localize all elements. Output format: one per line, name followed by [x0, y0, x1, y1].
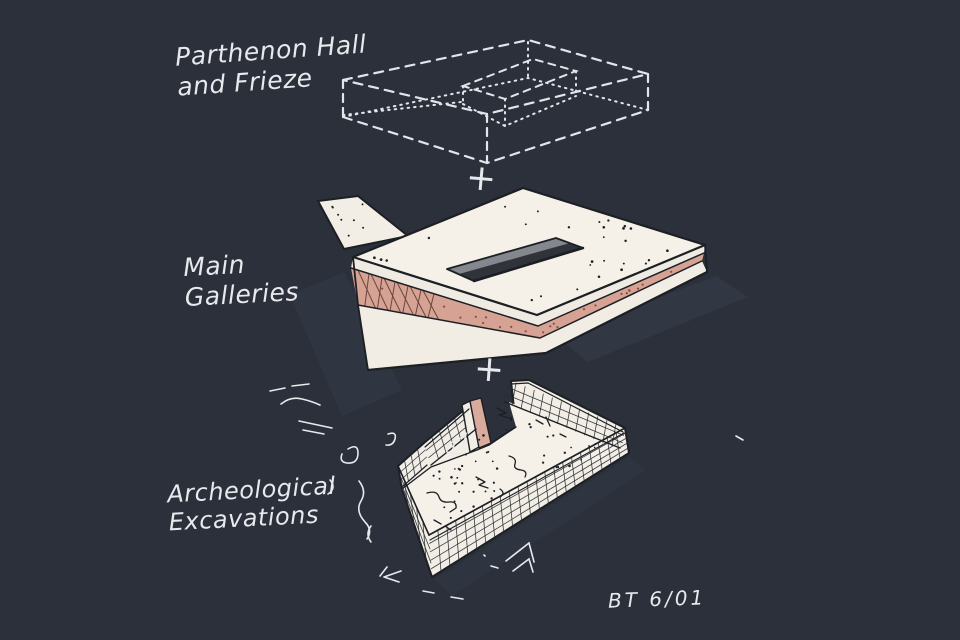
- box-inner-cella: [463, 59, 576, 99]
- box-vertical-edges: [343, 74, 648, 163]
- label-main-galleries: Main Galleries: [183, 247, 300, 312]
- box-hidden-dotted-edges: [343, 42, 648, 117]
- parthenon-hall-dashed-box: [343, 40, 648, 163]
- box-bottom-edges: [343, 110, 648, 163]
- label-archeological-excavations: Archeological Excavations: [167, 472, 338, 537]
- plus-separator-top: +: [464, 157, 498, 202]
- box-top-face: [343, 40, 648, 114]
- label-line: Galleries: [184, 277, 299, 312]
- sketch-canvas: Parthenon Hall and Frieze Main Galleries…: [0, 0, 960, 640]
- plus-separator-bottom: +: [473, 348, 507, 393]
- sketch-drawing: [0, 0, 960, 640]
- artist-signature: BT 6/01: [608, 586, 707, 613]
- main-galleries-slab: [318, 188, 707, 370]
